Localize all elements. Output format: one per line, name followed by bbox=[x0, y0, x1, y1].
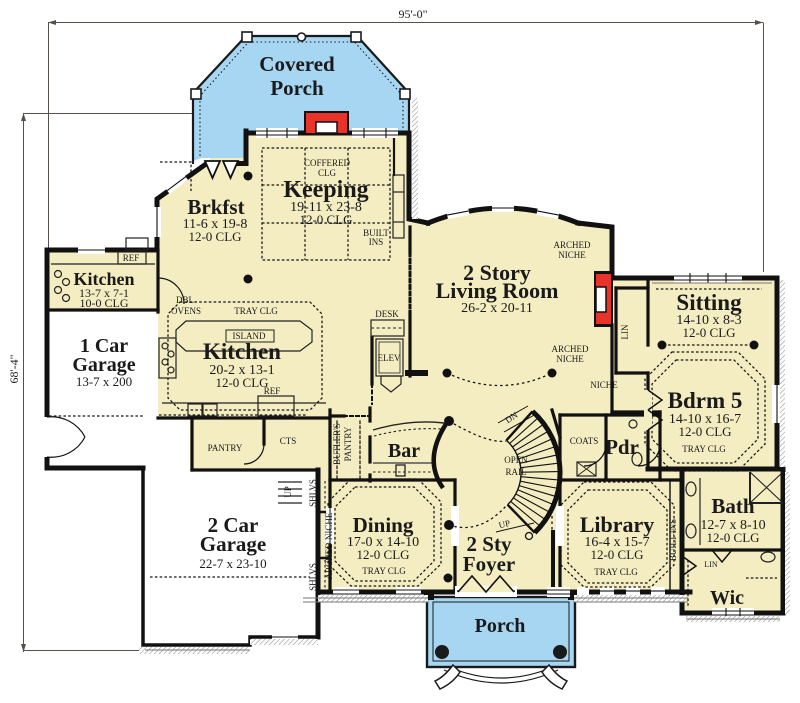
svg-text:ARCHED NICHE: ARCHED NICHE bbox=[324, 512, 334, 579]
svg-text:BUTLER'S: BUTLER'S bbox=[332, 423, 342, 465]
svg-text:REF: REF bbox=[264, 386, 281, 396]
svg-text:PANTRY: PANTRY bbox=[343, 426, 353, 461]
svg-text:Garage: Garage bbox=[200, 532, 266, 556]
svg-text:DBL: DBL bbox=[176, 295, 194, 305]
svg-text:12-0 CLG: 12-0 CLG bbox=[356, 547, 409, 562]
svg-text:INS: INS bbox=[369, 237, 384, 247]
svg-text:LIN: LIN bbox=[704, 560, 718, 569]
svg-text:Porch: Porch bbox=[270, 76, 324, 100]
svg-text:68'-4": 68'-4" bbox=[7, 354, 21, 383]
svg-text:ARCHED: ARCHED bbox=[553, 240, 591, 250]
svg-text:12-0 CLG: 12-0 CLG bbox=[706, 530, 759, 545]
svg-text:SHLVS: SHLVS bbox=[308, 563, 318, 591]
svg-text:Dining: Dining bbox=[353, 513, 414, 537]
svg-text:TRAY CLG: TRAY CLG bbox=[682, 444, 726, 454]
svg-text:Wic: Wic bbox=[710, 587, 744, 609]
svg-text:12-0 CLG: 12-0 CLG bbox=[215, 375, 268, 390]
svg-text:LIN: LIN bbox=[620, 324, 630, 339]
svg-text:10-0 CLG: 10-0 CLG bbox=[80, 296, 129, 310]
svg-text:95'-0": 95'-0" bbox=[398, 7, 427, 21]
svg-text:ARCHED: ARCHED bbox=[551, 344, 589, 354]
svg-text:Bath: Bath bbox=[711, 494, 755, 518]
svg-text:Bar: Bar bbox=[388, 440, 420, 462]
svg-text:SHLVS: SHLVS bbox=[308, 479, 318, 507]
svg-text:NICHE: NICHE bbox=[558, 250, 586, 260]
svg-text:12-0 CLG: 12-0 CLG bbox=[299, 212, 352, 227]
svg-text:Kitchen: Kitchen bbox=[203, 339, 281, 364]
svg-text:Garage: Garage bbox=[72, 354, 135, 376]
svg-text:UP: UP bbox=[283, 486, 293, 498]
svg-text:TRAY CLG: TRAY CLG bbox=[234, 306, 278, 316]
svg-text:COFFERED: COFFERED bbox=[304, 158, 351, 168]
svg-text:CTS: CTS bbox=[280, 436, 297, 446]
svg-text:PANTRY: PANTRY bbox=[208, 443, 243, 453]
svg-text:CLG: CLG bbox=[318, 168, 337, 178]
svg-text:Bdrm 5: Bdrm 5 bbox=[668, 388, 743, 413]
svg-text:Foyer: Foyer bbox=[463, 552, 515, 576]
svg-text:12-0 CLG: 12-0 CLG bbox=[590, 547, 643, 562]
svg-text:NICHE: NICHE bbox=[590, 380, 618, 390]
svg-text:12-0 CLG: 12-0 CLG bbox=[678, 424, 731, 439]
svg-text:Sitting: Sitting bbox=[676, 290, 742, 315]
svg-text:ISLAND: ISLAND bbox=[233, 331, 266, 341]
svg-text:26-2 x 20-11: 26-2 x 20-11 bbox=[461, 301, 533, 316]
svg-text:13-7 x 200: 13-7 x 200 bbox=[76, 374, 132, 389]
svg-text:Covered: Covered bbox=[259, 52, 335, 76]
svg-text:REF: REF bbox=[123, 253, 140, 263]
svg-text:DESK: DESK bbox=[375, 309, 399, 319]
svg-text:COATS: COATS bbox=[570, 436, 599, 446]
svg-text:22-7 x 23-10: 22-7 x 23-10 bbox=[199, 556, 266, 571]
svg-text:12-0 CLG: 12-0 CLG bbox=[682, 325, 735, 340]
svg-text:ELEV: ELEV bbox=[378, 353, 401, 363]
svg-text:OVENS: OVENS bbox=[171, 306, 201, 316]
svg-text:Pdr: Pdr bbox=[605, 435, 639, 459]
svg-text:Brkfst: Brkfst bbox=[187, 195, 244, 219]
svg-text:NICHE: NICHE bbox=[556, 354, 584, 364]
svg-text:TRAY CLG: TRAY CLG bbox=[594, 567, 638, 577]
svg-text:Library: Library bbox=[580, 512, 655, 537]
svg-text:Living Room: Living Room bbox=[436, 278, 559, 303]
svg-text:Porch: Porch bbox=[475, 615, 526, 637]
svg-text:BUILT-INS: BUILT-INS bbox=[668, 519, 678, 561]
svg-text:12-0 CLG: 12-0 CLG bbox=[188, 229, 241, 244]
svg-text:TRAY CLG: TRAY CLG bbox=[362, 566, 406, 576]
